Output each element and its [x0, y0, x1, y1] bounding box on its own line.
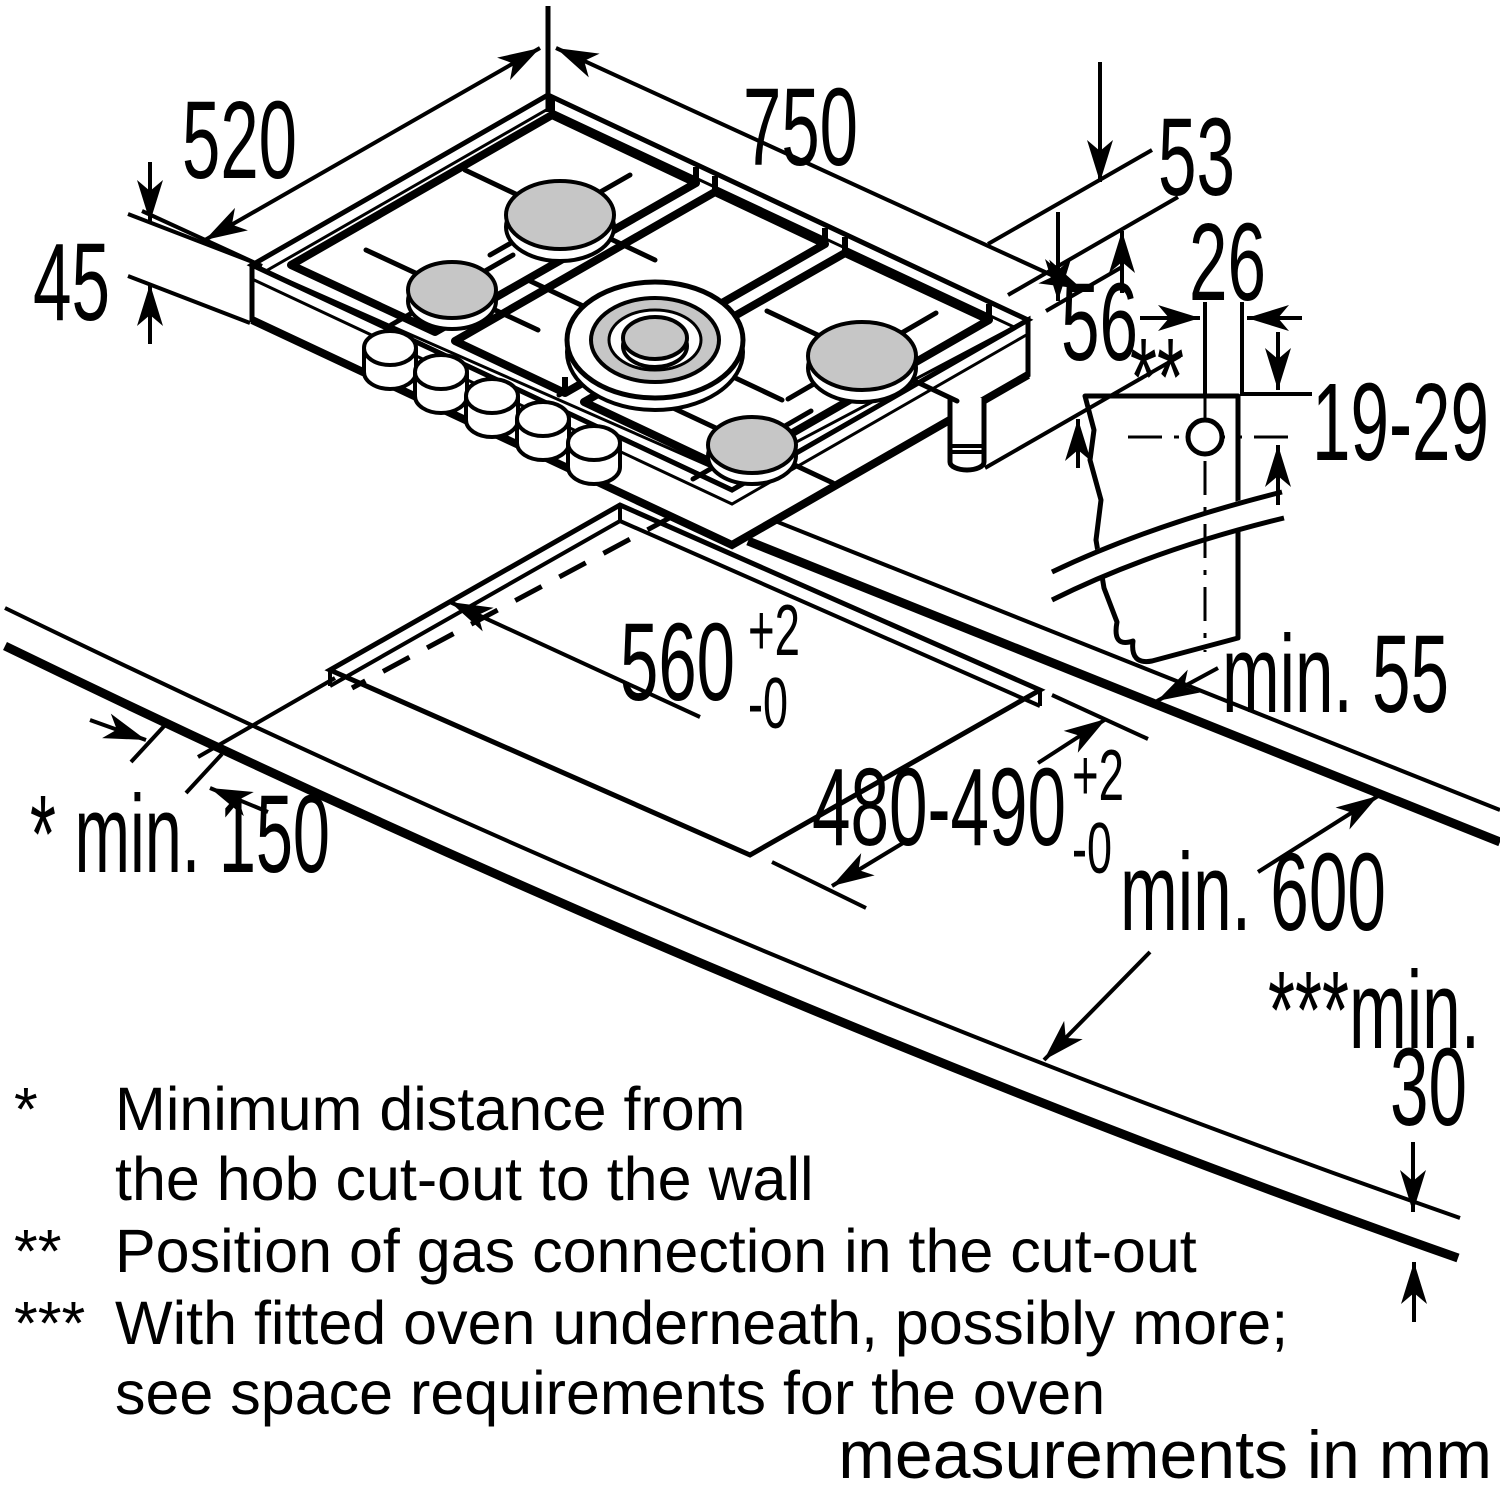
footnote-1-marker: *: [14, 1075, 38, 1143]
burner-back: [506, 181, 614, 261]
dim-min150-arrow1: [90, 720, 146, 740]
dim-min150-tick1: [131, 723, 167, 762]
footnote-2-marker: **: [14, 1217, 61, 1285]
footnote-3-line1: With fitted oven underneath, possibly mo…: [115, 1289, 1288, 1357]
label-hob-height: 45: [33, 221, 110, 344]
label-cutout-depth: 480-490: [812, 746, 1066, 869]
footnote-1-line1: Minimum distance from: [115, 1075, 746, 1143]
footnotes: * Minimum distance from the hob cut-out …: [14, 1075, 1492, 1493]
knob: [466, 379, 518, 437]
dim-45-ext-top: [128, 214, 250, 261]
knob: [568, 426, 620, 484]
knob: [517, 402, 569, 460]
label-gas-marker: **: [1130, 316, 1184, 439]
units-label: measurements in mm: [838, 1417, 1492, 1493]
dim-min600-arrow-lower: [1044, 952, 1150, 1060]
burner-right: [808, 322, 916, 402]
diagram-canvas: 750 520 45 53 56 26 ** 19-29 560 +2 -0 4…: [0, 0, 1500, 1494]
hob: [252, 95, 1028, 545]
footnote-2-line1: Position of gas connection in the cut-ou…: [115, 1217, 1197, 1285]
label-gas-offset: 26: [1189, 201, 1266, 324]
label-below-top-height: 56: [1061, 261, 1138, 384]
label-cutout-depth-tol-plus: +2: [1072, 736, 1124, 816]
label-hob-width: 750: [743, 66, 858, 189]
label-cutout-width-tol-minus: -0: [748, 664, 788, 744]
footnote-1-line2: the hob cut-out to the wall: [115, 1145, 814, 1213]
footnote-3-marker: ***: [14, 1289, 85, 1357]
knob: [415, 355, 467, 413]
label-cutout-depth-tol-minus: -0: [1072, 809, 1112, 889]
dim-480-ext-upper: [1052, 695, 1148, 739]
label-rear-clearance: min. 55: [1222, 613, 1449, 736]
dim-45-ext-bottom: [128, 276, 250, 323]
burner-wok: [567, 282, 743, 410]
gas-connection-hole: [1188, 420, 1222, 454]
label-gas-depth-range: 19-29: [1312, 361, 1489, 484]
label-side-clearance: * min. 150: [30, 773, 330, 896]
installation-diagram: 750 520 45 53 56 26 ** 19-29 560 +2 -0 4…: [0, 0, 1500, 1494]
burner-left: [408, 262, 496, 329]
burner-front: [708, 417, 796, 484]
label-front-clearance-value: 30: [1390, 1026, 1467, 1149]
dim-min150-ext: [198, 678, 335, 757]
dim-53-ext-top: [988, 150, 1152, 244]
gas-pipe: [950, 398, 984, 470]
label-worktop-depth: min. 600: [1120, 831, 1386, 954]
knob: [364, 331, 416, 389]
label-cutout-width-tol-plus: +2: [748, 591, 800, 671]
label-cutout-width: 560: [620, 601, 735, 724]
label-hob-depth: 520: [182, 79, 297, 202]
